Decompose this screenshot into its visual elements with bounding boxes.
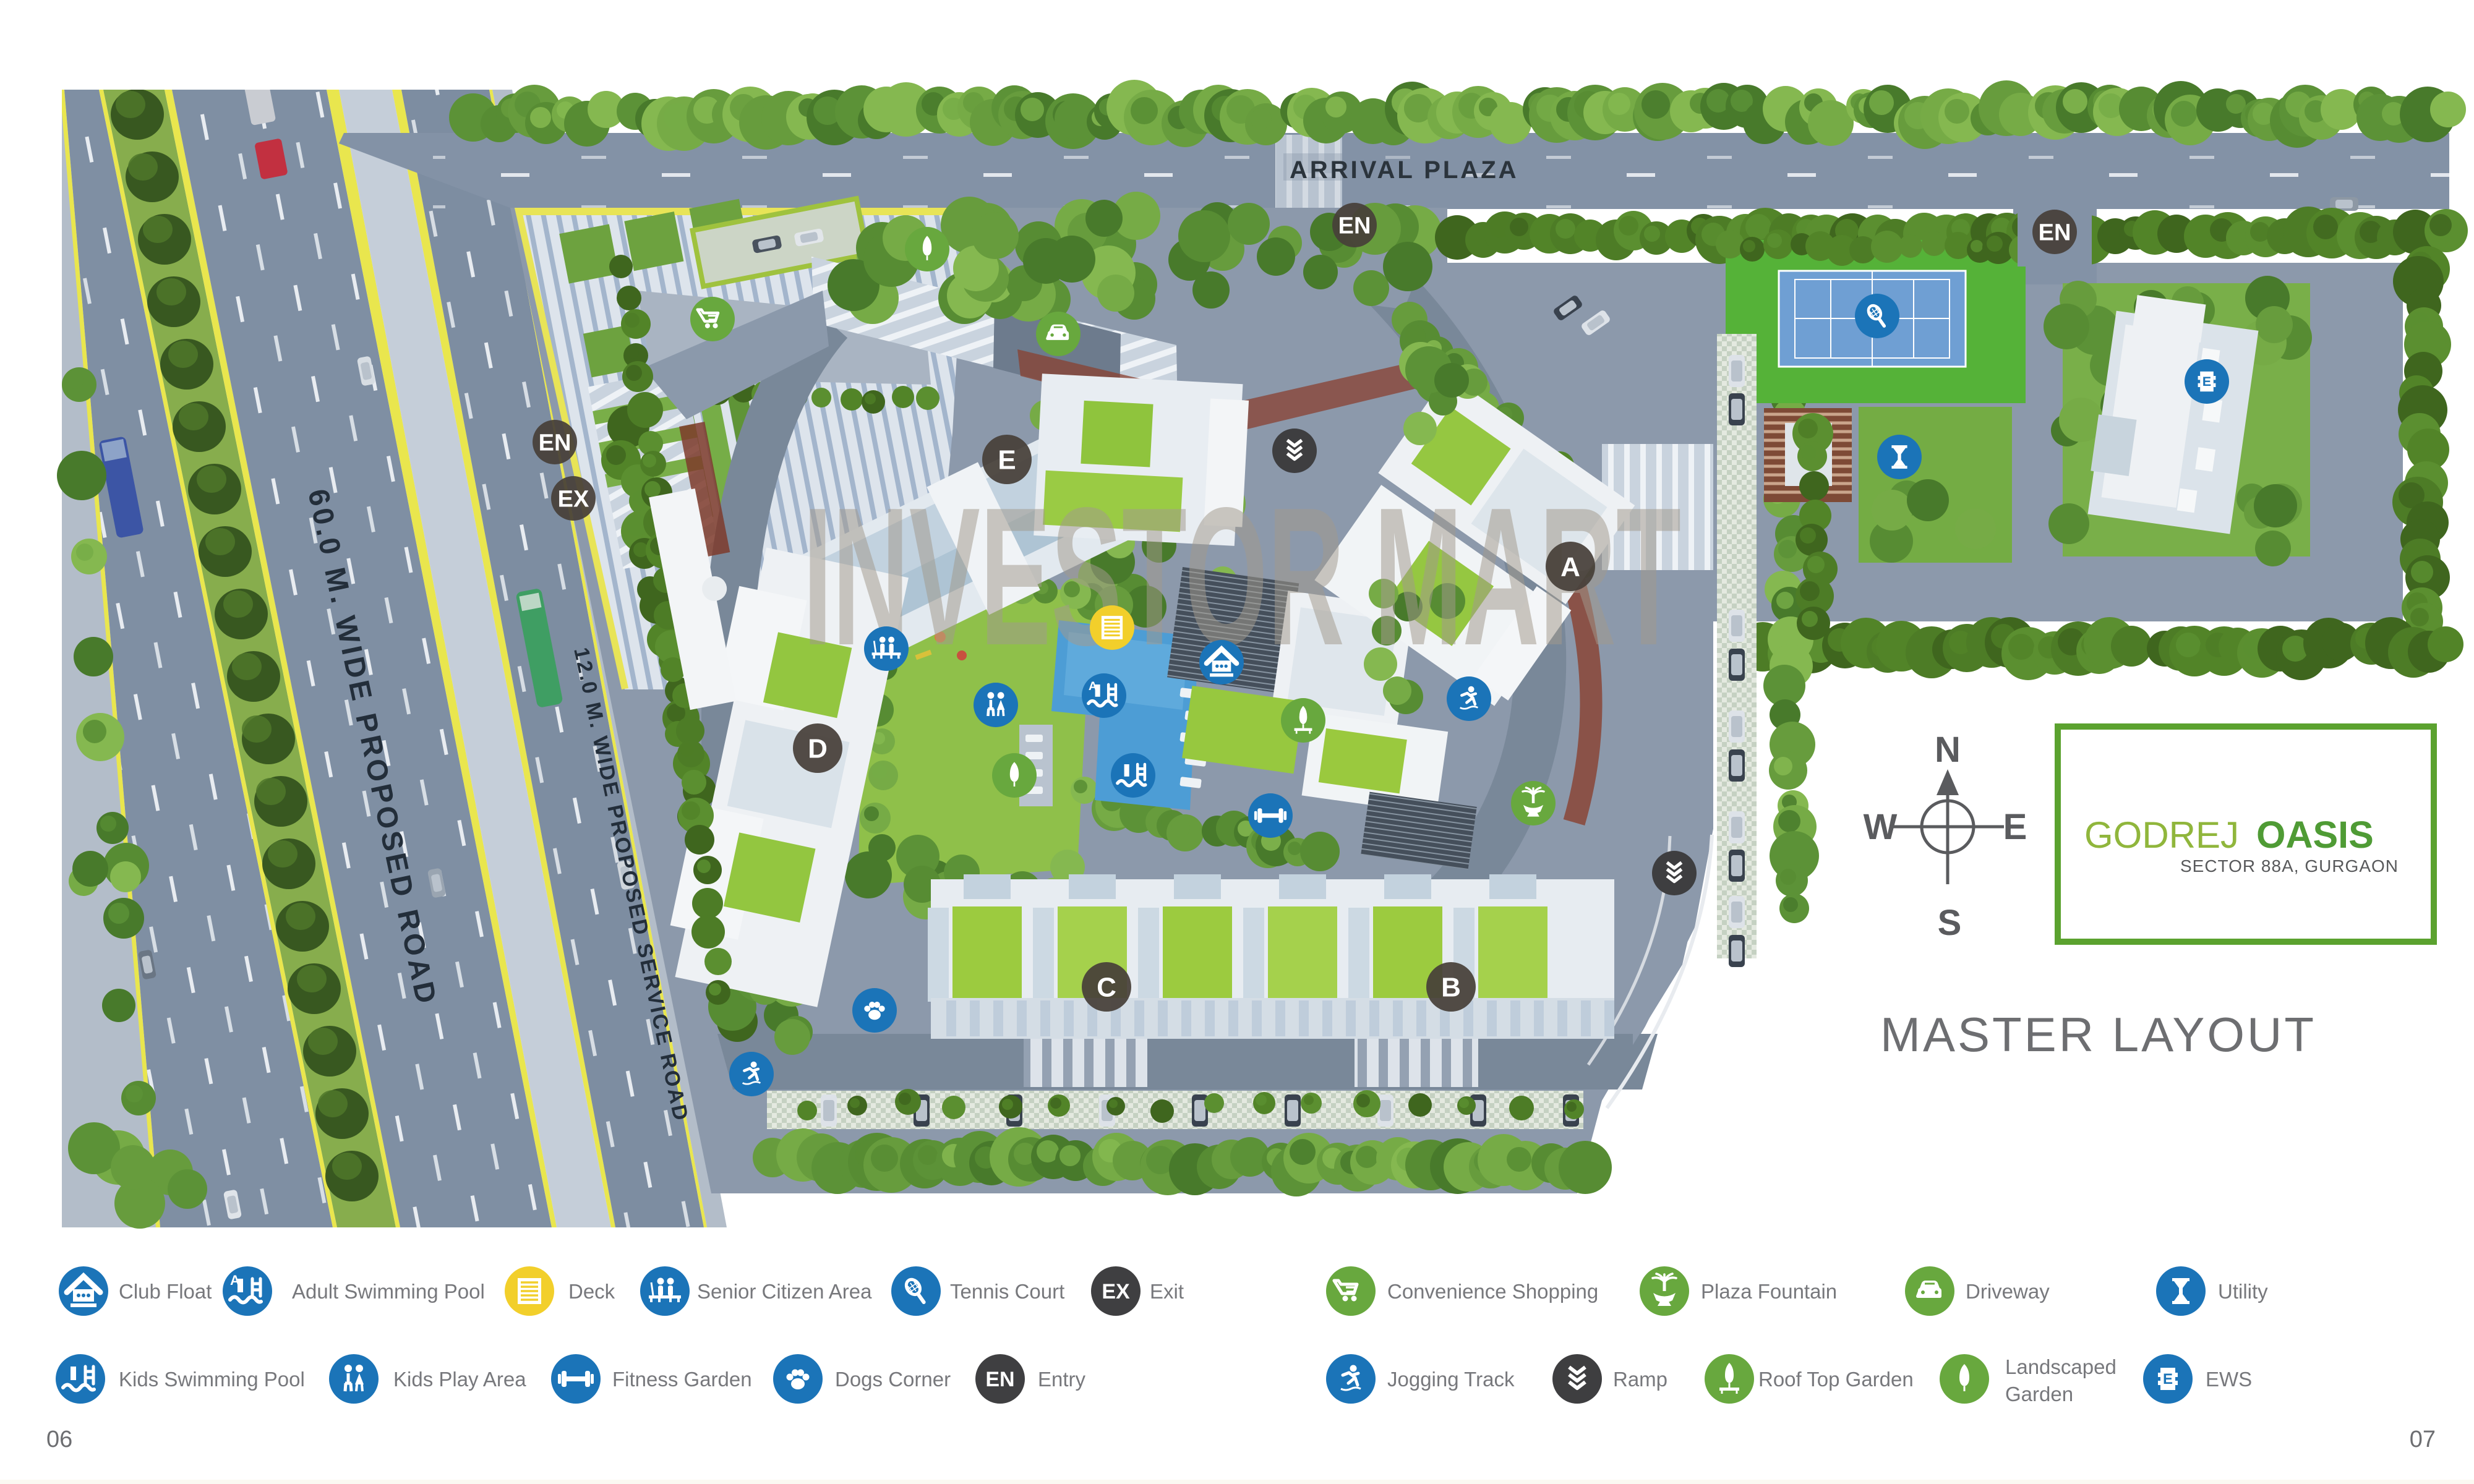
- svg-text:EX: EX: [558, 486, 589, 512]
- svg-text:E: E: [2003, 807, 2027, 847]
- svg-text:Kids Swimming Pool: Kids Swimming Pool: [119, 1368, 305, 1391]
- svg-text:B: B: [1441, 972, 1461, 1002]
- svg-text:Kids Play Area: Kids Play Area: [393, 1368, 526, 1391]
- svg-text:Entry: Entry: [1038, 1368, 1086, 1391]
- svg-text:A: A: [1560, 552, 1580, 582]
- svg-text:Driveway: Driveway: [1966, 1280, 2050, 1303]
- svg-text:Utility: Utility: [2218, 1280, 2268, 1303]
- svg-text:EN: EN: [985, 1368, 1014, 1391]
- svg-text:OASIS: OASIS: [2256, 814, 2374, 856]
- svg-text:S: S: [1938, 903, 1962, 943]
- svg-text:MASTER LAYOUT: MASTER LAYOUT: [1880, 1007, 2316, 1062]
- svg-text:Landscaped: Landscaped: [2005, 1355, 2117, 1378]
- svg-text:C: C: [1097, 972, 1116, 1002]
- svg-text:W: W: [1864, 807, 1898, 847]
- svg-text:EX: EX: [1102, 1280, 1130, 1303]
- svg-text:Garden: Garden: [2005, 1383, 2073, 1405]
- svg-text:Club Float: Club Float: [119, 1280, 212, 1303]
- svg-text:Tennis Court: Tennis Court: [950, 1280, 1064, 1303]
- svg-text:EN: EN: [1338, 213, 1371, 239]
- svg-text:GODREJ: GODREJ: [2084, 814, 2239, 856]
- svg-text:EWS: EWS: [2206, 1368, 2252, 1391]
- svg-text:07: 07: [2410, 1426, 2436, 1452]
- svg-text:Adult Swimming Pool: Adult Swimming Pool: [292, 1280, 485, 1303]
- svg-text:Ramp: Ramp: [1613, 1368, 1667, 1391]
- svg-text:Deck: Deck: [568, 1280, 615, 1303]
- svg-text:Convenience Shopping: Convenience Shopping: [1387, 1280, 1598, 1303]
- svg-text:Fitness Garden: Fitness Garden: [612, 1368, 752, 1391]
- svg-text:EN: EN: [539, 430, 571, 456]
- svg-text:EN: EN: [2039, 220, 2071, 245]
- svg-text:SECTOR 88A, GURGAON: SECTOR 88A, GURGAON: [2180, 856, 2399, 876]
- svg-text:Exit: Exit: [1150, 1280, 1184, 1303]
- svg-text:Senior Citizen Area: Senior Citizen Area: [697, 1280, 872, 1303]
- svg-text:D: D: [808, 733, 828, 764]
- svg-text:ARRIVAL PLAZA: ARRIVAL PLAZA: [1290, 156, 1519, 184]
- svg-text:Roof Top Garden: Roof Top Garden: [1758, 1368, 1914, 1391]
- svg-text:N: N: [1935, 730, 1961, 770]
- svg-text:Dogs Corner: Dogs Corner: [835, 1368, 951, 1391]
- svg-text:Plaza Fountain: Plaza Fountain: [1701, 1280, 1837, 1303]
- svg-text:E: E: [998, 445, 1016, 475]
- svg-text:Jogging Track: Jogging Track: [1387, 1368, 1515, 1391]
- svg-text:06: 06: [46, 1426, 72, 1452]
